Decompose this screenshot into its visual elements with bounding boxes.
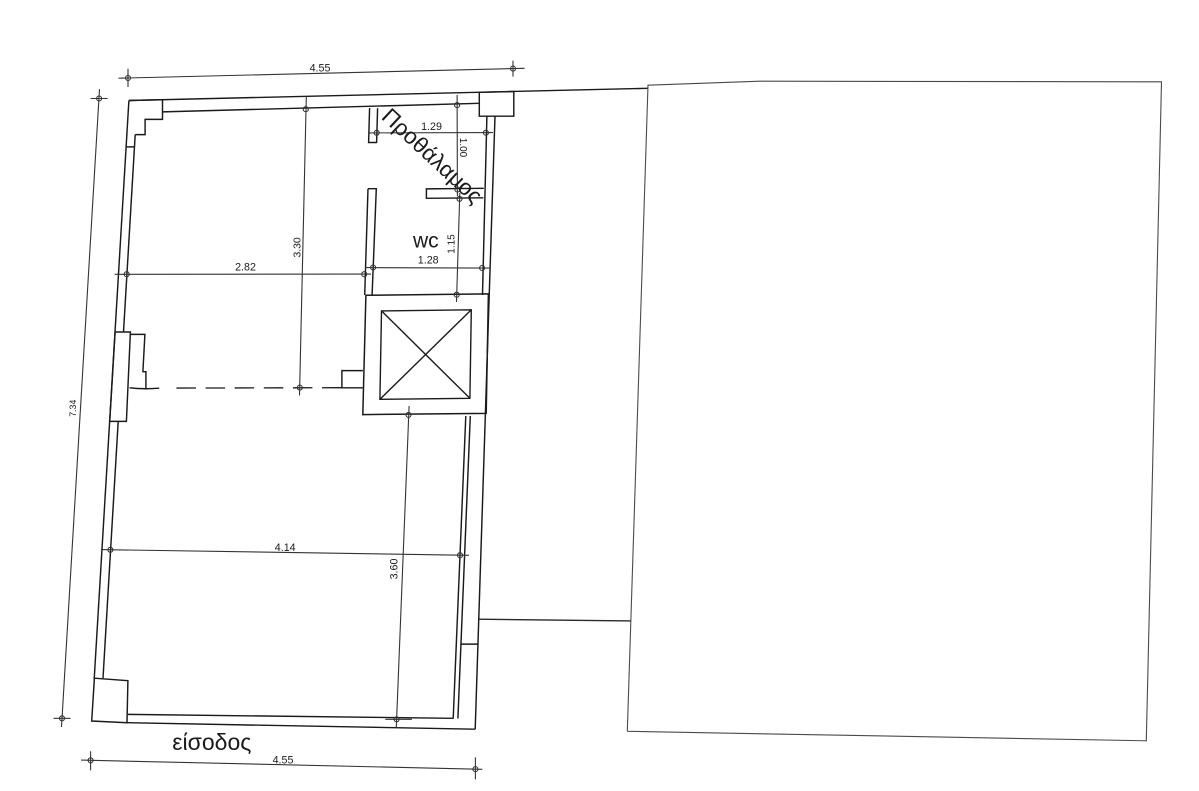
svg-text:1.00: 1.00 [457,138,468,158]
svg-text:3.30: 3.30 [293,237,304,257]
svg-text:4.55: 4.55 [273,755,294,767]
svg-text:7.34: 7.34 [68,400,78,417]
svg-text:1.15: 1.15 [447,234,458,254]
svg-text:είσοδος: είσοδος [172,729,251,755]
svg-text:1.28: 1.28 [418,255,439,267]
svg-text:4.55: 4.55 [310,63,331,75]
svg-text:3.60: 3.60 [389,559,401,580]
svg-text:4.14: 4.14 [275,542,296,554]
svg-text:wc: wc [412,229,439,252]
svg-text:2.82: 2.82 [235,262,256,274]
